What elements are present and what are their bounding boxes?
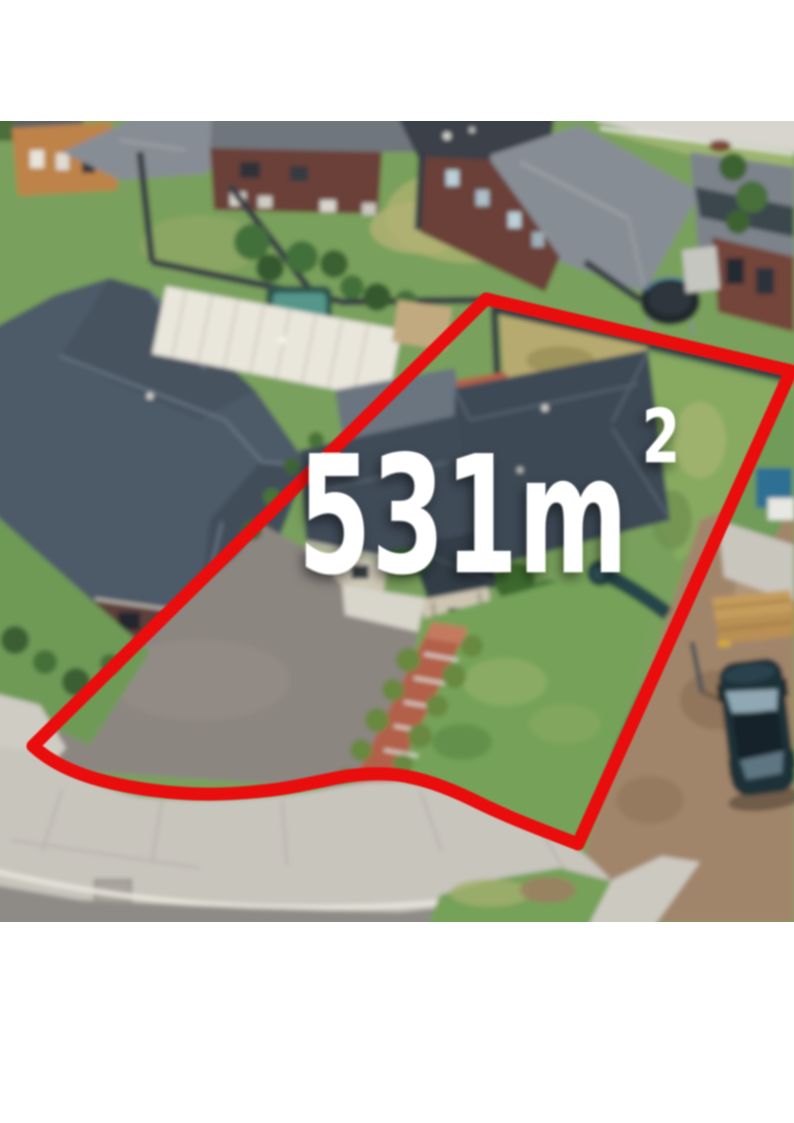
garden-shed: [682, 246, 720, 293]
aerial-photo-canvas: 531m 2: [0, 0, 794, 1123]
white-bird: [278, 336, 286, 344]
area-label: 531m 2: [298, 394, 680, 611]
dark-house-roof: [210, 118, 425, 152]
area-exponent-text: 2: [642, 394, 680, 480]
area-value-text: 531m: [298, 422, 628, 611]
parked-car-distant: [709, 140, 731, 152]
real-estate-listing-image: 531m 2: [0, 0, 794, 1123]
